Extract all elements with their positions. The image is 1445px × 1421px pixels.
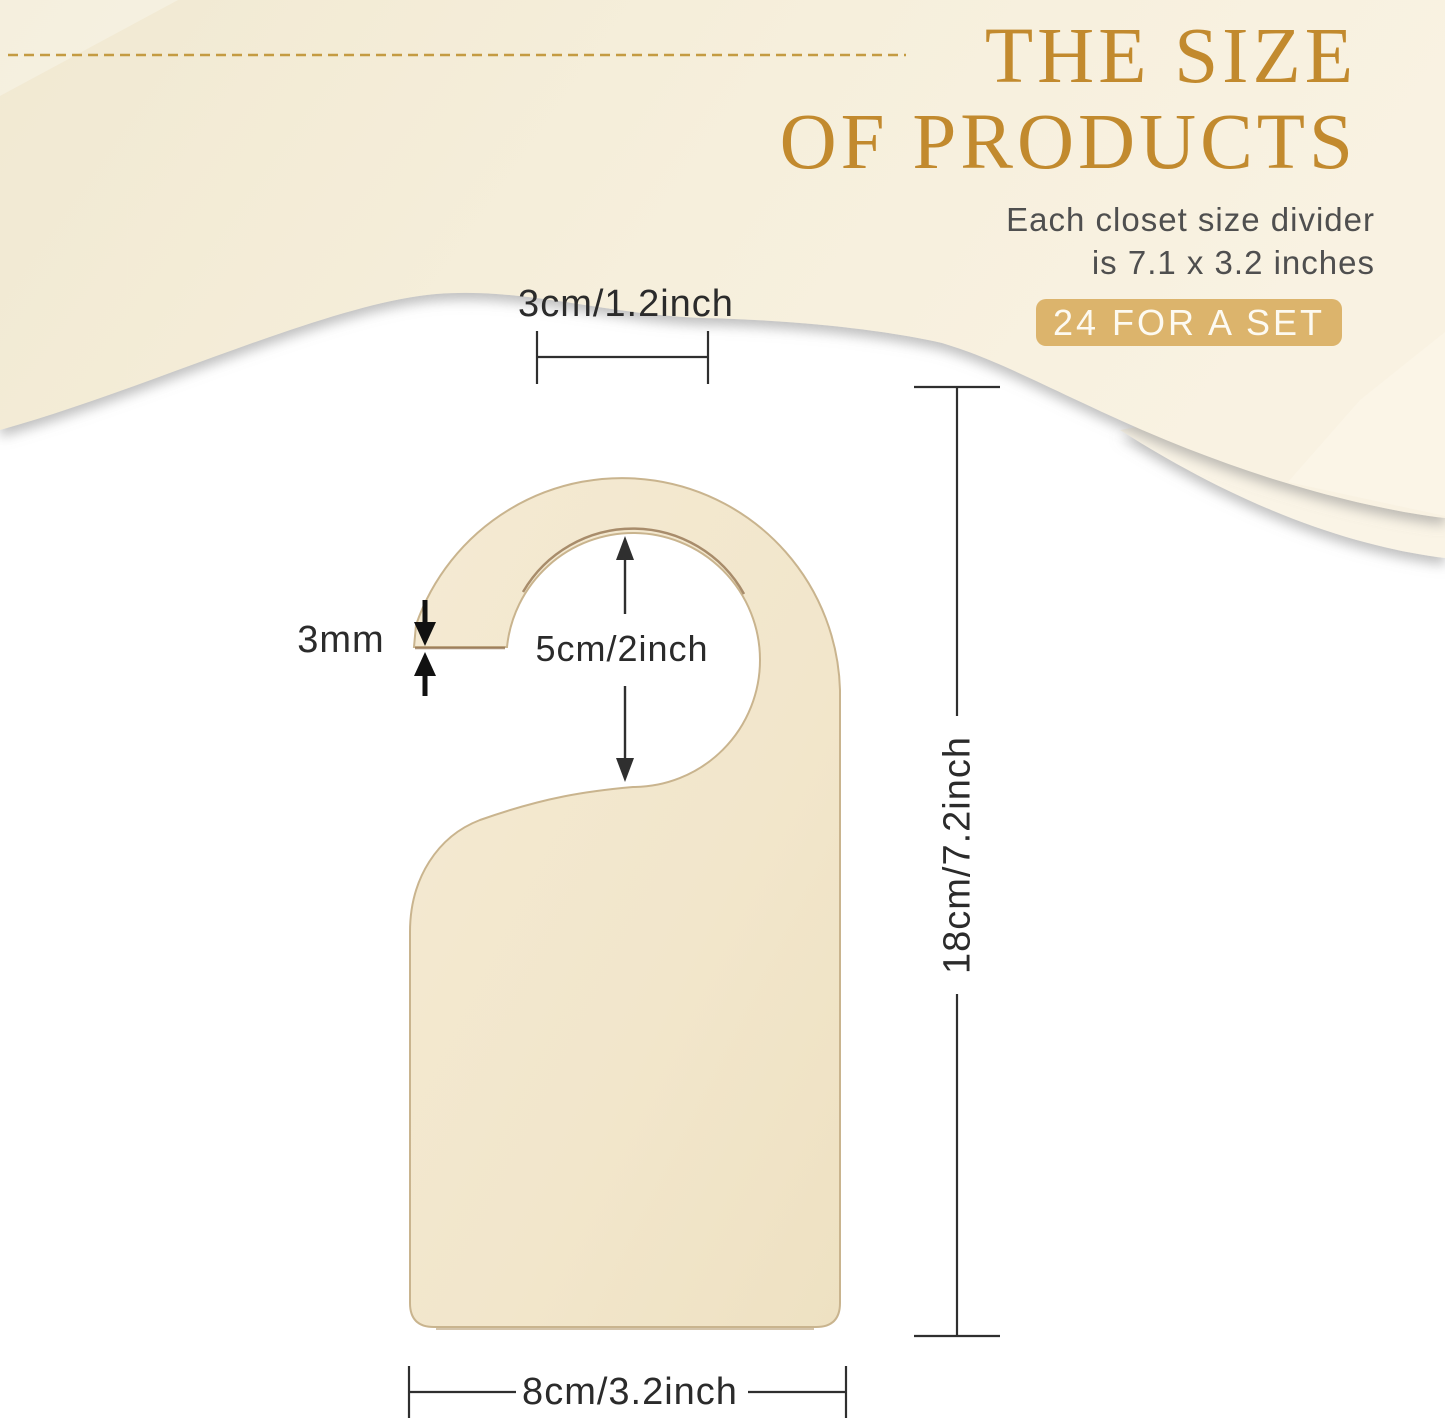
page-title: THE SIZE OF PRODUCTS xyxy=(780,14,1357,186)
label-total-width: 8cm/3.2inch xyxy=(522,1371,738,1414)
page-subtitle-line2: is 7.1 x 3.2 inches xyxy=(1006,241,1375,284)
label-hole-diameter: 5cm/2inch xyxy=(535,628,708,670)
label-hook-width: 3cm/1.2inch xyxy=(518,283,734,326)
page-subtitle: Each closet size divider is 7.1 x 3.2 in… xyxy=(1006,198,1375,284)
dim-hook-width xyxy=(537,331,708,384)
page-title-line2: OF PRODUCTS xyxy=(780,100,1357,186)
label-total-height: 18cm/7.2inch xyxy=(937,736,980,974)
label-thickness: 3mm xyxy=(297,619,384,662)
page-title-line1: THE SIZE xyxy=(780,14,1357,100)
page-subtitle-line1: Each closet size divider xyxy=(1006,198,1375,241)
set-badge: 24 FOR A SET xyxy=(1036,299,1342,346)
product-size-infographic: { "header": { "title_line1": "THE SIZE",… xyxy=(0,0,1445,1421)
